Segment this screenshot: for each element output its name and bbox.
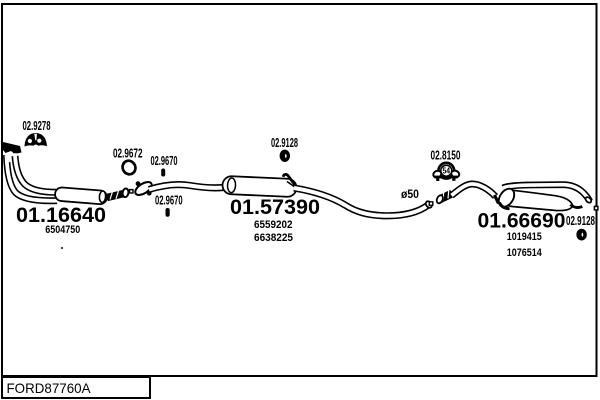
svg-text:02.9128: 02.9128	[566, 214, 595, 228]
svg-text:1076514: 1076514	[507, 247, 543, 259]
svg-text:02.9278: 02.9278	[23, 119, 51, 133]
svg-text:02.9670: 02.9670	[155, 194, 183, 208]
svg-text:6559202: 6559202	[254, 219, 293, 231]
svg-text:FORD87760A: FORD87760A	[7, 380, 92, 396]
svg-text:01.66690: 01.66690	[478, 209, 566, 233]
svg-text:02.9128: 02.9128	[271, 136, 298, 150]
svg-text:02.8150: 02.8150	[431, 149, 461, 163]
svg-text:1019415: 1019415	[507, 231, 542, 243]
svg-text:54: 54	[443, 167, 451, 176]
svg-text:02.9672: 02.9672	[113, 147, 143, 161]
svg-text:6504750: 6504750	[45, 224, 80, 236]
svg-text:02.9670: 02.9670	[151, 154, 178, 168]
svg-text:6638225: 6638225	[254, 232, 293, 244]
svg-text:ø50: ø50	[401, 189, 419, 201]
svg-text:01.57390: 01.57390	[230, 195, 320, 219]
